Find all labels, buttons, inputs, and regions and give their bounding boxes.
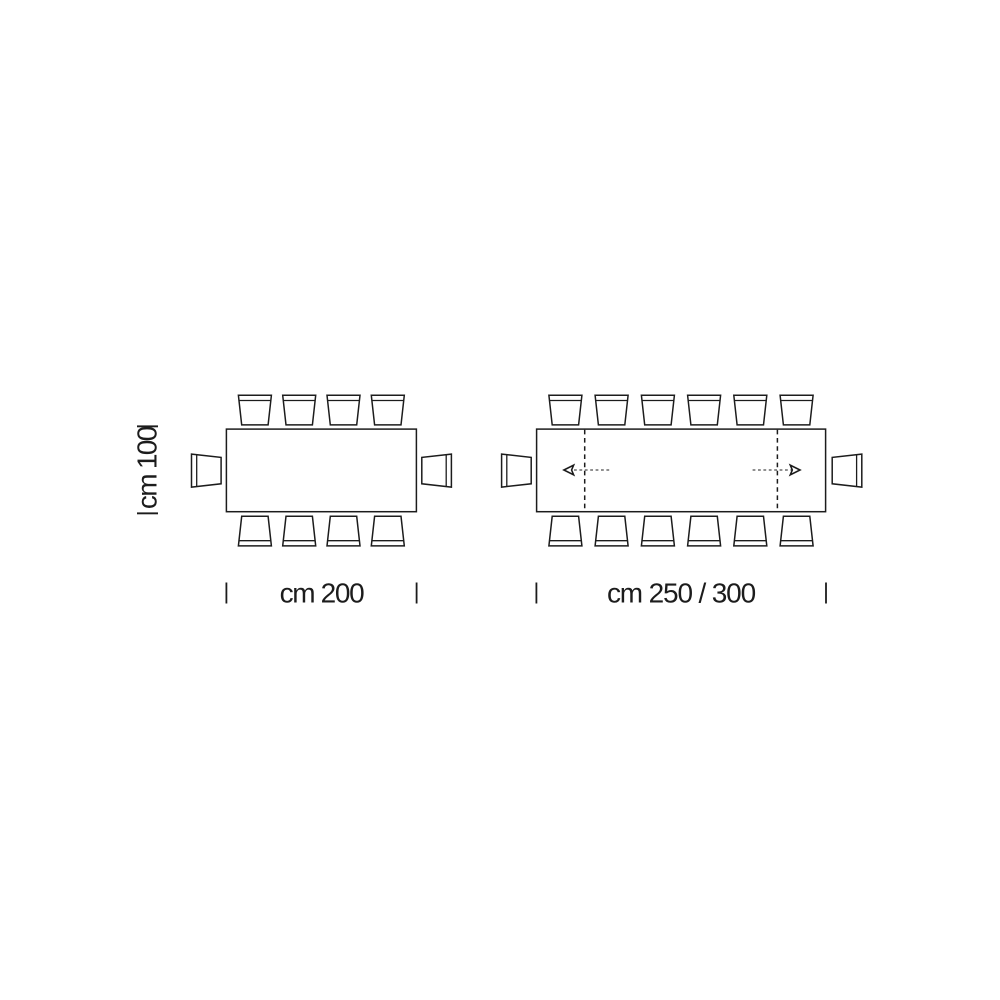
svg-text:cm 200: cm 200 [280, 578, 364, 609]
svg-text:cm 250 / 300: cm 250 / 300 [607, 578, 756, 609]
svg-text:cm 100: cm 100 [132, 426, 163, 509]
